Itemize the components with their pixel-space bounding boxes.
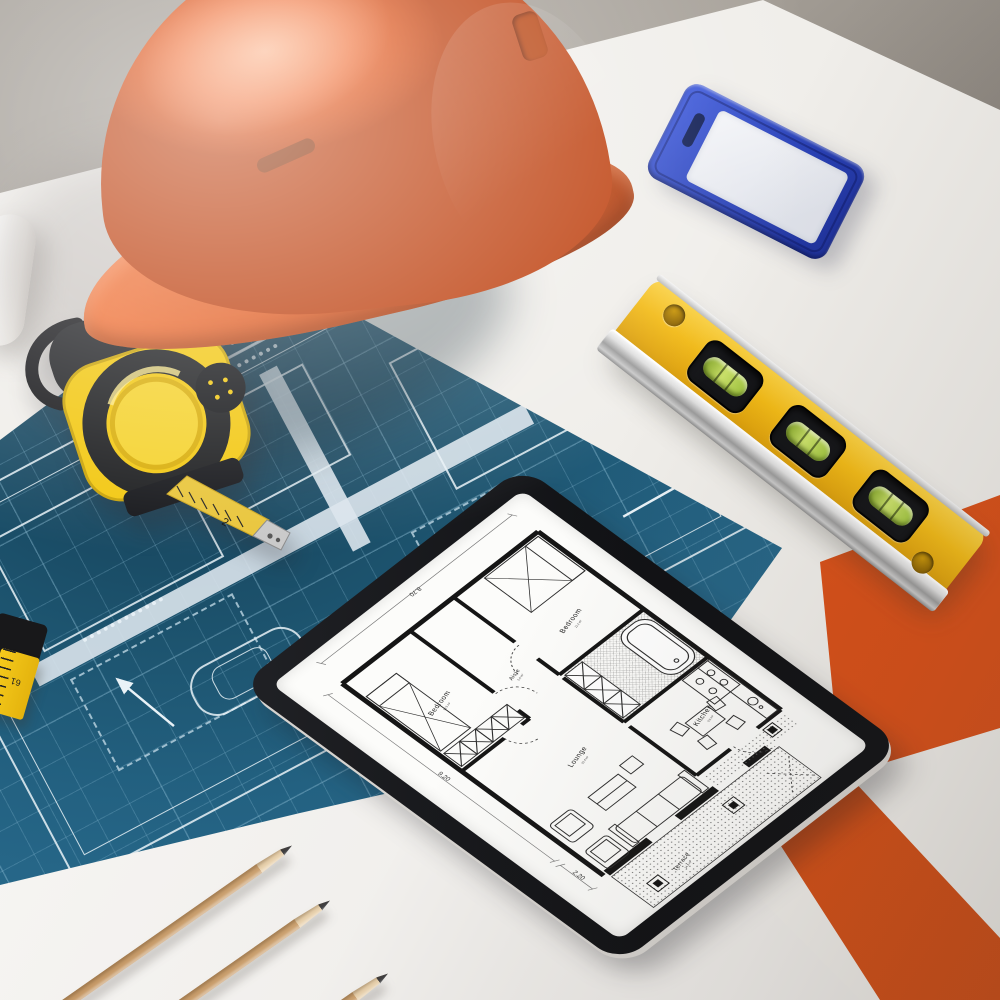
dimension-label-bottom: 2.20 bbox=[571, 870, 587, 882]
scene: 2 61 bbox=[0, 0, 1000, 1000]
tape-blade: 2 bbox=[167, 476, 290, 550]
dimension-label-left: 9.20 bbox=[436, 771, 452, 783]
closet-cells-bedroom-left bbox=[444, 704, 525, 766]
level-hanging-hole bbox=[659, 300, 690, 331]
rule-number: 61 bbox=[10, 676, 22, 688]
safety-helmet bbox=[65, 0, 645, 370]
bed-right bbox=[484, 536, 585, 612]
wall-background-right bbox=[763, 0, 1000, 110]
dimension-label-top: 8.70 bbox=[407, 585, 423, 597]
id-badge-holder bbox=[643, 79, 869, 263]
